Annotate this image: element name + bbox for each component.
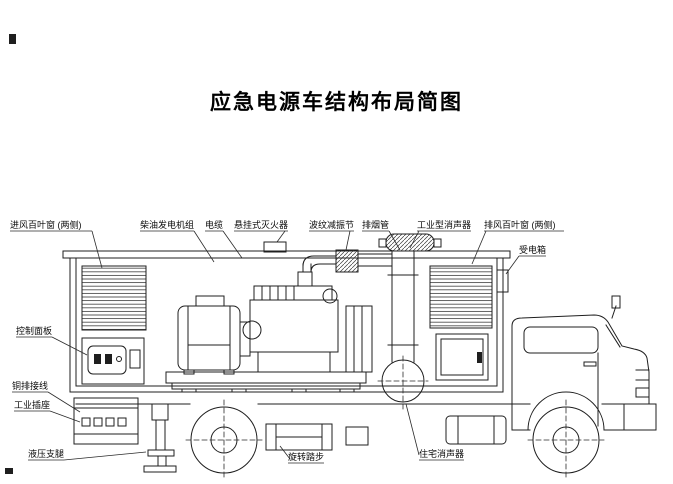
hydraulic-outrigger-jack bbox=[144, 404, 176, 472]
label-busbar-wiring: 铜排接线 bbox=[12, 380, 48, 391]
rear-wheel bbox=[186, 400, 262, 480]
callout-hydraulic-outrigger: 液压支腿 bbox=[28, 448, 146, 460]
label-intake-louver: 进风百叶窗 (两侧) bbox=[10, 219, 82, 230]
industrial-socket-panel bbox=[74, 398, 138, 444]
exhaust-louver-panel bbox=[430, 266, 492, 380]
label-cable: 电缆 bbox=[205, 219, 223, 230]
front-wheel bbox=[528, 400, 604, 480]
label-hydraulic-outrigger: 液压支腿 bbox=[28, 448, 64, 459]
intake-louver-panel bbox=[82, 266, 146, 330]
callout-diesel-generator-set: 柴油发电机组 bbox=[140, 219, 214, 262]
residential-muffler-cylinder bbox=[378, 356, 428, 410]
genset-base-frame bbox=[166, 372, 366, 392]
callout-residential-muffler: 住宅消声器 bbox=[406, 404, 464, 460]
label-exhaust-louver: 排风百叶窗 (两侧) bbox=[484, 219, 556, 230]
vehicle-layout-diagram: 进风百叶窗 (两侧) 柴油发电机组 电缆 悬挂式灭火器 波纹减振节 排烟管 工业… bbox=[0, 0, 673, 484]
alternator bbox=[178, 296, 250, 374]
label-rotating-step: 旋转踏步 bbox=[288, 451, 324, 462]
label-fire-extinguisher: 悬挂式灭火器 bbox=[234, 219, 288, 230]
label-residential-muffler: 住宅消声器 bbox=[419, 448, 464, 459]
control-panel-cabinet bbox=[82, 338, 144, 384]
callout-industrial-socket: 工业插座 bbox=[14, 399, 80, 422]
label-diesel-generator-set: 柴油发电机组 bbox=[140, 219, 194, 230]
under-chassis-tank bbox=[446, 416, 506, 444]
label-industrial-muffler: 工业型消声器 bbox=[417, 219, 471, 230]
label-power-receiving-box: 受电箱 bbox=[519, 244, 546, 255]
label-exhaust-pipe: 排烟管 bbox=[362, 219, 389, 230]
battery-box bbox=[346, 427, 368, 445]
label-bellows-joint: 波纹减振节 bbox=[309, 219, 354, 230]
callout-intake-louver: 进风百叶窗 (两侧) bbox=[10, 219, 102, 268]
label-control-panel: 控制面板 bbox=[16, 325, 52, 336]
callout-rotating-step: 旋转踏步 bbox=[280, 446, 324, 463]
stray-mark bbox=[9, 34, 16, 44]
callout-power-receiving-box: 受电箱 bbox=[506, 244, 546, 274]
label-industrial-socket: 工业插座 bbox=[14, 399, 50, 410]
rotating-step-box bbox=[266, 424, 332, 450]
callout-fire-extinguisher: 悬挂式灭火器 bbox=[234, 219, 288, 242]
bellows-damping-joint bbox=[336, 250, 392, 272]
stray-mark bbox=[5, 468, 13, 474]
callout-bellows-joint: 波纹减振节 bbox=[309, 219, 354, 250]
diesel-engine bbox=[243, 256, 372, 372]
truck-cab bbox=[512, 296, 656, 430]
